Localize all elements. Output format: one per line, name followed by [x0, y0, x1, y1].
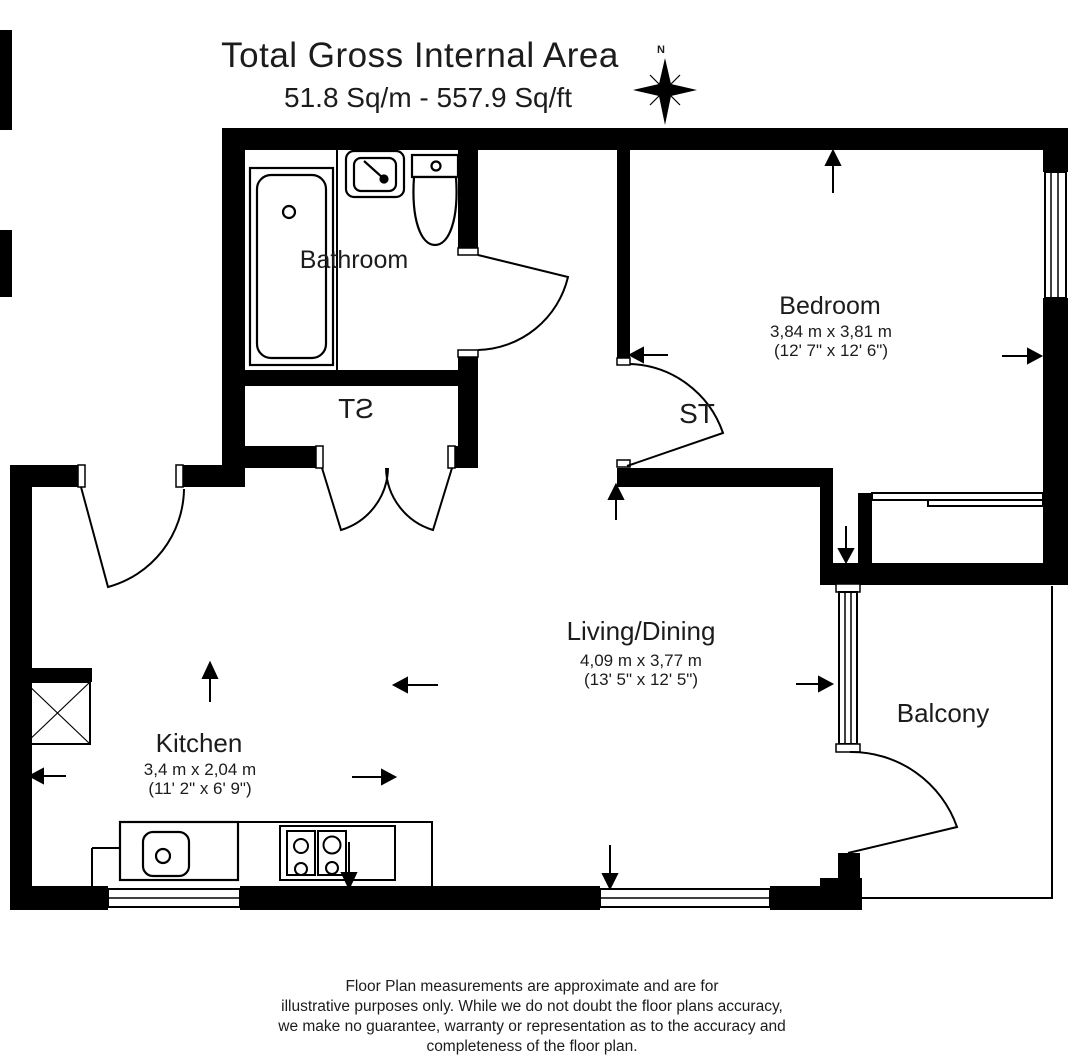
- st-door-right-leaf: [386, 468, 452, 530]
- basin: [346, 151, 404, 197]
- appliance-unit: [25, 682, 90, 744]
- disclaimer-line-2: illustrative purposes only. While we do …: [82, 997, 982, 1017]
- arrow-kitchen-right: [352, 770, 395, 784]
- compass-north-label: N: [657, 44, 665, 56]
- room-dims-kitchen: 3,4 m x 2,04 m (11' 2" x 6' 9"): [144, 760, 256, 798]
- arrow-balcony-right: [796, 677, 832, 691]
- kitchen-size-imperial: (11' 2" x 6' 9"): [144, 779, 256, 798]
- page-title: Total Gross Internal Area: [221, 36, 619, 76]
- room-label-living-dining: Living/Dining: [567, 616, 716, 647]
- wall-hall-bedroom-divider: [617, 150, 630, 360]
- entry-door-sill-right: [176, 465, 183, 487]
- room-dims-bedroom: 3,84 m x 3,81 m (12' 7" x 12' 6"): [770, 322, 892, 360]
- disclaimer-line-4: completeness of the floor plan.: [82, 1037, 982, 1057]
- arrow-living-left: [394, 678, 438, 692]
- room-label-storage-hall: ST: [338, 393, 374, 425]
- disclaimer-line-1: Floor Plan measurements are approximate …: [82, 977, 982, 997]
- wall-entry-right: [183, 465, 245, 487]
- kitchen-sink: [120, 822, 238, 880]
- arrow-kitchen-left: [30, 769, 66, 783]
- bedroom-south-window: [872, 493, 1043, 506]
- wall-bathroom-left: [222, 150, 245, 470]
- balcony-door: [848, 752, 957, 853]
- compass-star: [633, 58, 697, 125]
- page-subtitle: 51.8 Sq/m - 557.9 Sq/ft: [284, 82, 572, 114]
- arrow-hall-up: [609, 485, 623, 520]
- bathroom-door-sill-top: [458, 248, 478, 255]
- wall-top: [222, 128, 1068, 150]
- bedroom-size-metric: 3,84 m x 3,81 m: [770, 322, 892, 341]
- bedroom-door-sill-top: [617, 358, 630, 365]
- arrow-bedroom-right: [1002, 349, 1041, 363]
- disclaimer-line-3: we make no guarantee, warranty or repres…: [82, 1017, 982, 1037]
- wall-right-main: [1043, 298, 1068, 585]
- wall-bathroom-right-upper: [458, 150, 478, 250]
- wall-balcony-top: [820, 563, 1068, 585]
- st-door-sill-left: [316, 446, 323, 468]
- wall-bathroom-st-divider: [222, 370, 478, 386]
- entry-door: [81, 487, 184, 587]
- wall-bottom-2: [240, 886, 600, 910]
- kitchen-window: [108, 889, 240, 907]
- hob: [280, 826, 395, 880]
- st-door-sill-right: [448, 446, 455, 468]
- wall-west: [10, 465, 32, 910]
- wall-living-north: [617, 468, 833, 487]
- room-label-storage-bedroom: ST: [679, 398, 715, 430]
- wall-window-pier: [858, 493, 872, 563]
- arrow-bedroom-left: [630, 348, 668, 362]
- balcony-window: [836, 584, 860, 752]
- door-sills: [78, 248, 630, 487]
- floorplan-drawing: [0, 0, 1076, 1064]
- balcony-railing: [858, 586, 1052, 898]
- arrow-bedroom-up: [826, 151, 840, 193]
- wall-fragment-upper: [0, 30, 12, 130]
- room-label-balcony: Balcony: [897, 698, 990, 729]
- wall-st-bottom-right: [452, 446, 478, 468]
- bathroom-door-sill-bottom: [458, 350, 478, 357]
- living-size-metric: 4,09 m x 3,77 m: [580, 651, 702, 670]
- wall-st-bottom-left: [242, 446, 316, 468]
- wall-fragment-lower: [0, 230, 12, 297]
- kitchen-size-metric: 3,4 m x 2,04 m: [144, 760, 256, 779]
- room-label-kitchen: Kitchen: [156, 728, 243, 759]
- arrow-living-down: [839, 526, 853, 562]
- wall-right-upper: [1043, 128, 1068, 172]
- room-dims-living: 4,09 m x 3,77 m (13' 5" x 12' 5"): [580, 651, 702, 689]
- living-window: [600, 889, 770, 907]
- arrow-kitchen-up: [203, 663, 217, 702]
- compass-rose: [633, 58, 697, 125]
- toilet: [412, 155, 458, 245]
- living-size-imperial: (13' 5" x 12' 5"): [580, 670, 702, 689]
- arrow-window-down: [603, 845, 617, 888]
- wall-kitchen-stub: [25, 668, 92, 682]
- arrow-sink-down: [342, 842, 356, 888]
- bedroom-size-imperial: (12' 7" x 12' 6"): [770, 341, 892, 360]
- disclaimer: Floor Plan measurements are approximate …: [82, 977, 982, 1057]
- room-label-bedroom: Bedroom: [779, 292, 880, 321]
- bedroom-east-window: [1045, 172, 1066, 298]
- wall-balcony-corner: [820, 878, 862, 910]
- floorplan-page: Total Gross Internal Area 51.8 Sq/m - 55…: [0, 0, 1076, 1064]
- st-door-left-leaf: [322, 468, 388, 530]
- room-label-bathroom: Bathroom: [300, 246, 408, 275]
- bathroom-door: [478, 255, 568, 350]
- entry-door-sill-left: [78, 465, 85, 487]
- wall-bottom-1: [10, 886, 108, 910]
